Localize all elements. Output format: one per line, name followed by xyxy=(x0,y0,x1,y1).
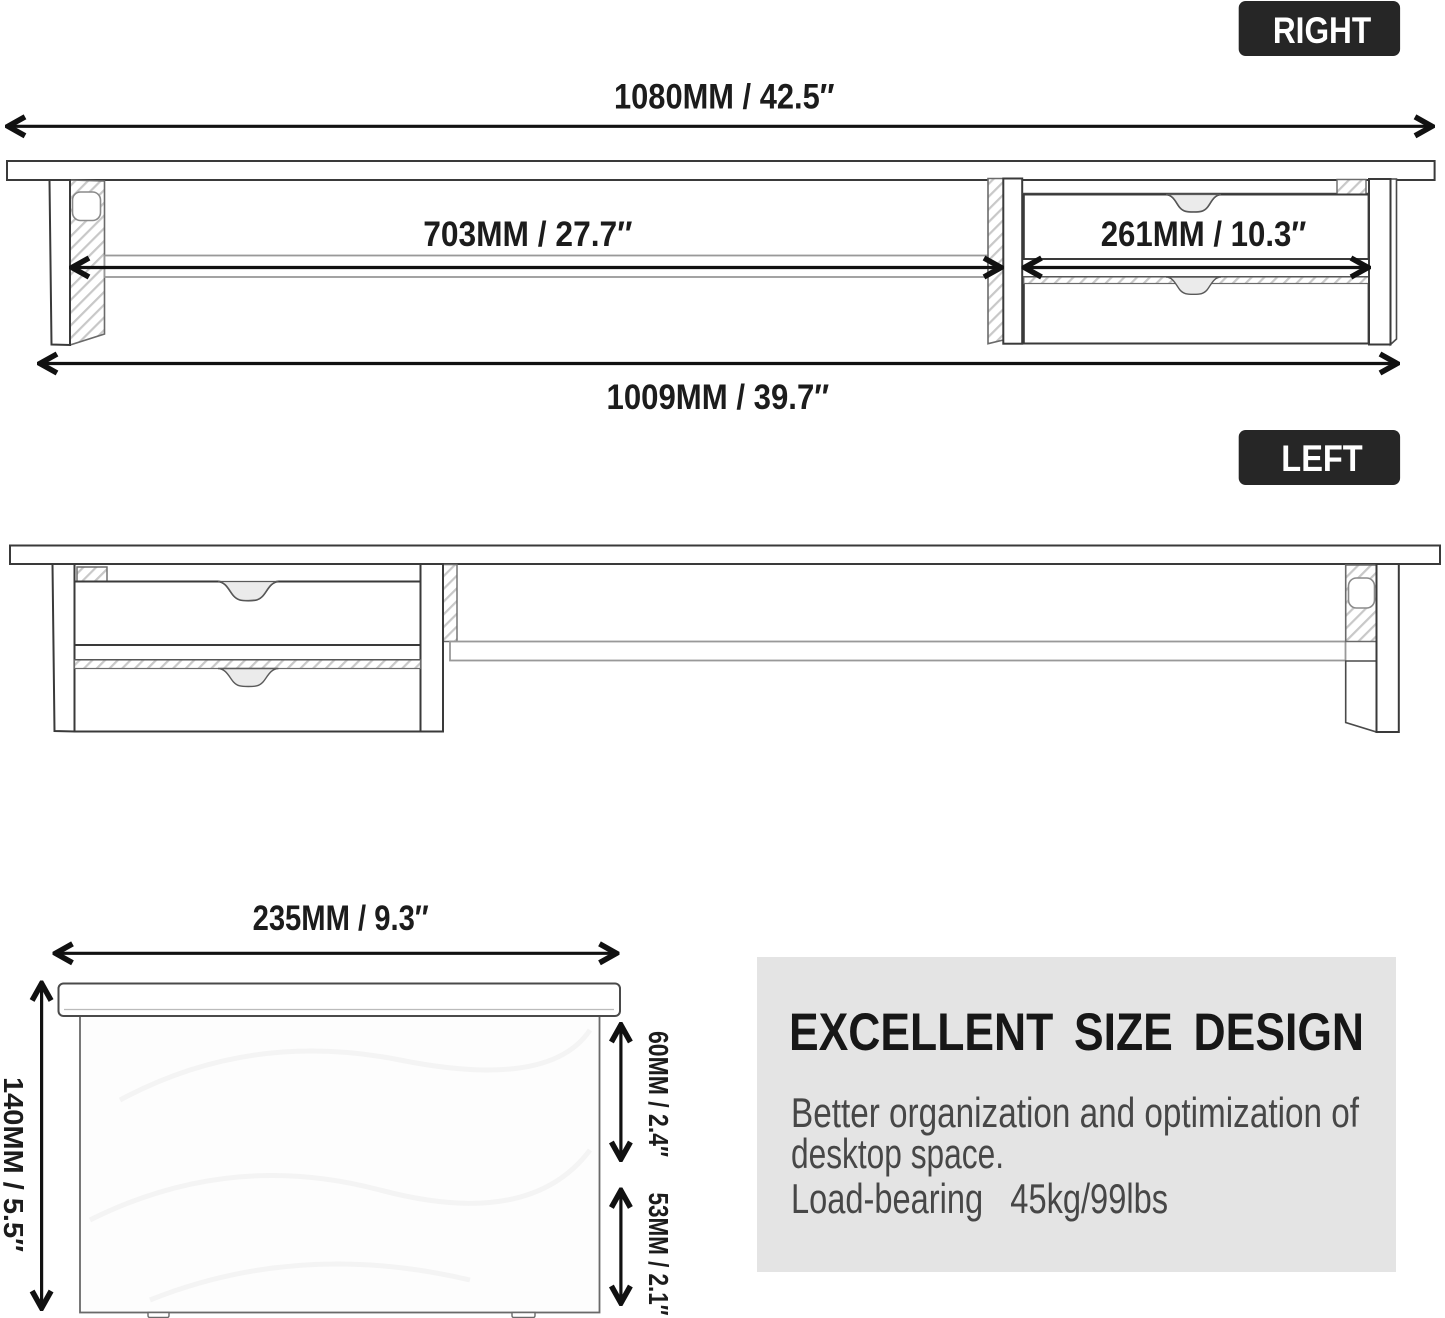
svg-text:RIGHT: RIGHT xyxy=(1273,10,1372,51)
svg-text:LEFT: LEFT xyxy=(1281,438,1363,479)
svg-text:Better organization and optimi: Better organization and optimization of xyxy=(791,1089,1359,1136)
svg-text:1009MM / 39.7″: 1009MM / 39.7″ xyxy=(607,378,830,417)
svg-text:261MM / 10.3″: 261MM / 10.3″ xyxy=(1101,215,1307,254)
svg-text:1080MM / 42.5″: 1080MM / 42.5″ xyxy=(614,78,835,117)
svg-text:235MM / 9.3″: 235MM / 9.3″ xyxy=(253,899,429,938)
svg-text:703MM / 27.7″: 703MM / 27.7″ xyxy=(423,215,632,254)
svg-text:EXCELLENT SIZE DESIGN: EXCELLENT SIZE DESIGN xyxy=(789,1003,1364,1062)
svg-text:60MM / 2.4″: 60MM / 2.4″ xyxy=(643,1031,674,1157)
svg-text:140MM / 5.5″: 140MM / 5.5″ xyxy=(0,1077,29,1252)
svg-text:53MM / 2.1″: 53MM / 2.1″ xyxy=(643,1193,674,1316)
svg-text:Load-bearing 45kg/99lbs: Load-bearing 45kg/99lbs xyxy=(791,1175,1168,1222)
svg-text:desktop space.: desktop space. xyxy=(791,1130,1004,1177)
